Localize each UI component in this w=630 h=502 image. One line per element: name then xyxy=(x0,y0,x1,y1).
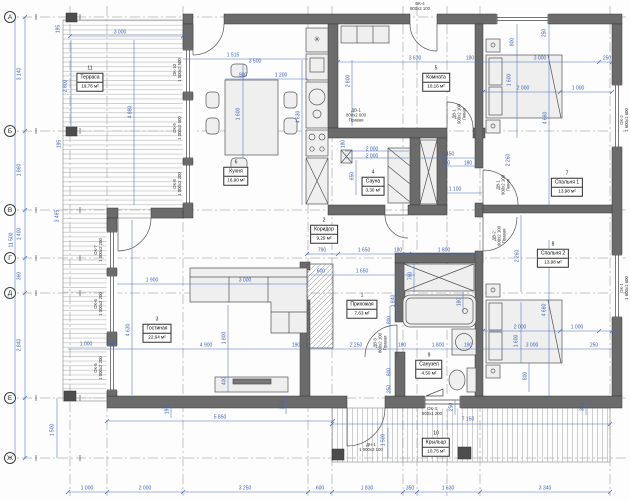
opening-mark: ОК-101 000х2 500 xyxy=(172,58,182,82)
dimension-text: 2 000 xyxy=(366,148,379,153)
axis-label-Б: Б xyxy=(4,125,16,137)
dimension-text: 600 xyxy=(317,270,325,275)
dimension-text: 800 xyxy=(388,316,393,324)
axis-label-Ж: Ж xyxy=(4,452,16,464)
dimension-text: 1 600 xyxy=(237,108,242,121)
dimension-text: 2 000 xyxy=(514,326,527,331)
dimension-text: 1 100 xyxy=(449,188,462,193)
opening-mark: ОК-91 000х2 500 xyxy=(172,116,182,140)
dimension-text: 2 260 xyxy=(507,154,512,167)
dimension-text: 3 340 xyxy=(539,487,552,492)
opening-mark: ОК-21 600х1 600 xyxy=(619,108,629,132)
dimension-text: 790 xyxy=(318,249,326,254)
dimension-text: 2 000 xyxy=(366,155,379,160)
room-label-Терраса: 11Терраса19,76 м² xyxy=(76,67,103,93)
dimension-text: 180 xyxy=(398,344,406,349)
dimension-text: 3 140 xyxy=(18,68,23,81)
opening-mark: ОК-51 000х2 200 xyxy=(93,356,103,380)
dimension-text: 195 xyxy=(58,140,63,148)
dimension-text: 3 000 xyxy=(526,344,539,349)
opening-mark: ОК-71 000х2 200 xyxy=(93,238,103,262)
dimension-text: 3 465 xyxy=(56,210,61,223)
dimension-text: 1 000 xyxy=(571,326,584,331)
room-label-Комната: 5Комната10,16 м² xyxy=(422,67,450,93)
opening-mark: ВК-4800х2 100 xyxy=(410,1,430,11)
dimension-text: 800 xyxy=(511,38,516,46)
dimension-text: 4 630 xyxy=(127,324,132,337)
dimension-text: 2 000 xyxy=(139,487,152,492)
room-label-Санузел: 9Санузел4,50 м² xyxy=(415,354,442,380)
axis-label-Е: Е xyxy=(4,392,16,404)
opening-mark: ОК-81 000х2 200 xyxy=(172,172,182,196)
axis-label-Г: Г xyxy=(4,252,16,264)
dimension-text: 2 260 xyxy=(516,250,521,263)
dimension-text: 250 xyxy=(590,344,598,349)
dimension-text: 250 xyxy=(603,57,611,62)
opening-mark: ОК-3600х1 200 xyxy=(422,406,442,416)
dimension-text: 1 400 xyxy=(18,228,23,241)
dimension-text: 350 xyxy=(581,403,586,411)
dimension-text: 1 500 xyxy=(51,424,56,437)
dimension-text: 4 660 xyxy=(544,112,549,125)
opening-mark: ОК-61 000х2 200 xyxy=(93,292,103,316)
dimension-text: 1 450 xyxy=(442,153,455,158)
opening-mark: ДВ-1900х2 100Левая xyxy=(495,175,510,195)
opening-mark: ДВ-3800х2 100Правая xyxy=(372,333,387,353)
room-label-Сауна: 4Сауна3,30 м² xyxy=(362,171,385,197)
axis-label-А: А xyxy=(4,11,16,23)
dimension-text: 190 xyxy=(292,344,300,349)
dimension-text: 180 xyxy=(458,298,463,306)
dimension-text: 2 250 xyxy=(350,344,363,349)
dimension-text: 3 250 xyxy=(239,487,252,492)
annotation-layer: АБВГДЕЖ3 0001952 8004 8801953 4653 1401 … xyxy=(0,0,630,502)
dimension-text: 1 630 xyxy=(442,487,455,492)
dimension-text: 400 xyxy=(223,377,228,385)
dimension-text: 3 630 xyxy=(409,57,422,62)
dimension-text: 1 800 xyxy=(438,249,451,254)
dimension-text: 180 xyxy=(394,249,402,254)
dimension-text: 180 xyxy=(466,57,474,62)
dimension-text: 1 515 xyxy=(227,54,240,59)
dimension-text: 195 xyxy=(166,406,171,414)
room-label-Крыльцо: 10Крыльцо10,75 м² xyxy=(422,432,450,458)
dimension-text: 5 850 xyxy=(214,416,227,421)
dimension-text: 450 xyxy=(442,162,450,167)
room-label-Гостиная: 3Гостиная22,64 м² xyxy=(143,318,172,344)
dimension-text: 2 000 xyxy=(517,87,530,92)
dimension-text: 250 xyxy=(388,385,393,393)
dimension-text: 7 150 xyxy=(462,418,475,423)
dimension-text: 1 000 xyxy=(81,487,94,492)
dimension-text: 4 900 xyxy=(200,344,213,349)
dimension-text: 1 860 xyxy=(18,164,23,177)
room-label-Спальня 2: 8Спальня 213,98 м² xyxy=(537,243,569,268)
dimension-text: 2 800 xyxy=(64,80,69,93)
axis-label-В: В xyxy=(4,204,16,216)
dimension-text: 800 xyxy=(524,372,529,380)
dimension-text: 900 xyxy=(239,74,247,79)
dimension-text: 190 xyxy=(464,344,472,349)
dimension-text: 3 500 xyxy=(249,60,262,65)
dimension-text: 350 xyxy=(406,487,414,492)
dimension-text: 750 xyxy=(107,343,115,348)
dimension-text: 2 800 xyxy=(347,75,352,88)
dimension-text: 1 800 xyxy=(223,332,228,345)
dimension-text: 250 xyxy=(543,29,548,37)
room-label-Прихожая: 1Прихожая7,63 м² xyxy=(346,294,377,320)
dimension-text: 760 xyxy=(409,272,414,280)
opening-mark: ОК-11 600х1 600 xyxy=(619,276,629,300)
dimension-text: 1 650 xyxy=(356,270,369,275)
dimension-text: 1 200 xyxy=(275,74,288,79)
opening-mark: ДВ-2900х2 100Правая xyxy=(491,226,506,246)
dimension-text: 1 650 xyxy=(358,249,371,254)
dimension-text: 4 630 xyxy=(297,111,302,124)
dimension-text: 1 000 xyxy=(572,87,585,92)
floor-plan-canvas: АБВГДЕЖ3 0001952 8004 8801953 4653 1401 … xyxy=(0,0,630,502)
room-label-Спальня 1: 7Спальня 113,98 м² xyxy=(551,172,583,198)
dimension-text: 650 xyxy=(351,172,356,180)
dimension-text: 180 xyxy=(464,162,472,167)
dimension-text: 800 xyxy=(388,368,393,376)
dimension-text: 1 000 xyxy=(80,343,93,348)
dimension-text: 4 880 xyxy=(129,106,134,119)
dimension-text: 250 xyxy=(450,403,455,411)
axis-label-Д: Д xyxy=(4,287,16,299)
dimension-text: 1 900 xyxy=(146,279,159,284)
dimension-text: 3 000 xyxy=(239,279,252,284)
dimension-text: 1 840 xyxy=(392,295,397,308)
fridge-snowflake-icon: ✳ xyxy=(314,36,321,44)
dimension-text: 1 600 xyxy=(508,74,513,87)
dimension-text: 4 660 xyxy=(543,304,548,317)
dimension-text: 360 xyxy=(18,272,23,280)
dimension-text: 195 xyxy=(57,25,62,33)
dimension-text: 3 000 xyxy=(534,57,547,62)
opening-mark: ДВ-1900х2 100Левая xyxy=(451,104,466,124)
dimension-text: 600 xyxy=(316,487,324,492)
dimension-text: 180 xyxy=(342,140,347,148)
room-label-Коридор: 2Коридор9,29 м² xyxy=(310,219,338,245)
opening-mark: ДВ-1800х2 000Правая xyxy=(346,107,366,122)
dimension-text: 2 840 xyxy=(18,339,23,352)
dimension-text: 1 800 xyxy=(432,344,445,349)
dimension-text: 11 500 xyxy=(10,233,15,248)
dimension-text: 1 600 xyxy=(515,335,520,348)
opening-mark: ДН-11 000х2 100 xyxy=(359,442,383,452)
dimension-text: 3 000 xyxy=(114,31,127,36)
room-label-Кухня: 6Кухня16,90 м² xyxy=(223,161,248,187)
dimension-text: 1 830 xyxy=(361,487,374,492)
dimension-text: 250 xyxy=(281,401,286,409)
